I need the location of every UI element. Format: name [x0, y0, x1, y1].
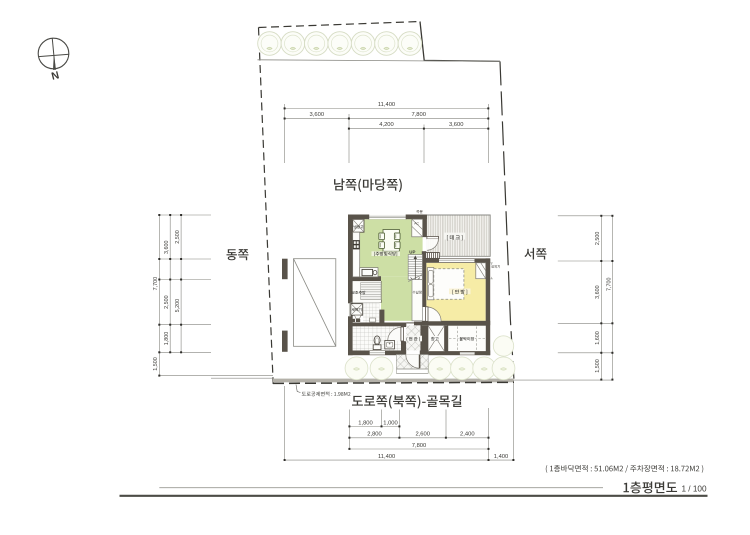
svg-text:2,800: 2,800 — [367, 432, 382, 438]
svg-text:2,500: 2,500 — [175, 230, 181, 244]
svg-text:UP: UP — [409, 250, 415, 255]
svg-text:3,600: 3,600 — [164, 240, 170, 254]
svg-text:11,400: 11,400 — [378, 454, 395, 460]
svg-text:11,400: 11,400 — [378, 102, 395, 108]
svg-text:2,600: 2,600 — [415, 432, 430, 438]
svg-text:3,600: 3,600 — [595, 285, 601, 299]
svg-text:1 / 100: 1 / 100 — [681, 484, 706, 493]
svg-text:2,500: 2,500 — [164, 295, 170, 309]
svg-text:7,700: 7,700 — [153, 277, 159, 291]
svg-text:7,800: 7,800 — [412, 443, 427, 449]
svg-text:1,400: 1,400 — [494, 454, 509, 460]
svg-text:1,500: 1,500 — [153, 357, 159, 371]
svg-text:1,800: 1,800 — [164, 332, 170, 346]
svg-text:2,400: 2,400 — [460, 432, 475, 438]
svg-text:1,800: 1,800 — [358, 420, 373, 426]
svg-text:1,600: 1,600 — [595, 331, 601, 345]
svg-text:AC: AC — [414, 221, 419, 225]
svg-text:7,700: 7,700 — [606, 278, 612, 292]
svg-text:1,500: 1,500 — [595, 359, 601, 373]
svg-text:5,200: 5,200 — [175, 299, 181, 313]
svg-text:3,600: 3,600 — [449, 122, 464, 128]
svg-text:2,500: 2,500 — [595, 232, 601, 246]
svg-text:3,600: 3,600 — [310, 112, 325, 118]
svg-text:7,800: 7,800 — [411, 112, 426, 118]
svg-text:4,200: 4,200 — [379, 122, 394, 128]
svg-text:1,000: 1,000 — [383, 420, 398, 426]
